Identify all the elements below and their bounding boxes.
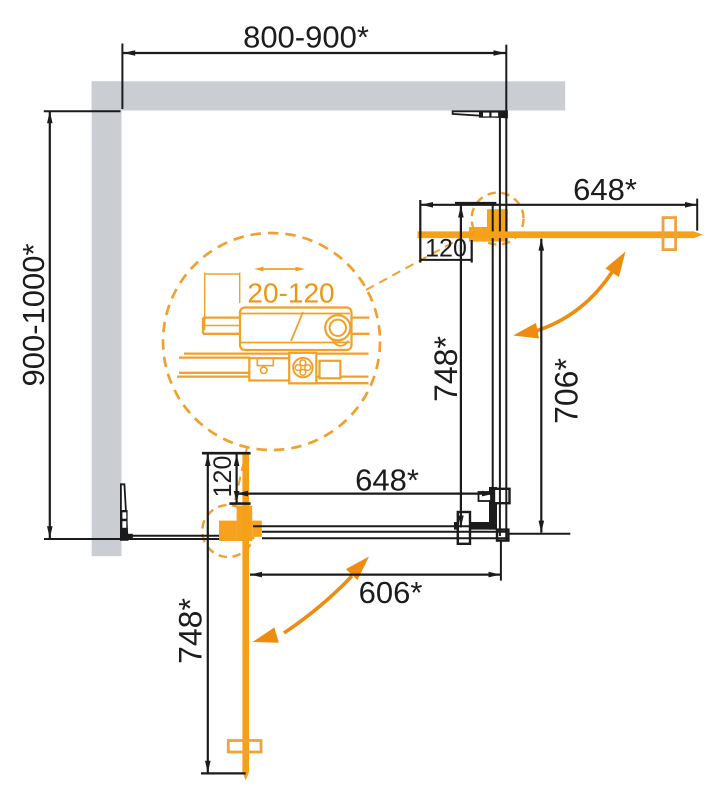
svg-text:900-1000*: 900-1000* [16, 243, 51, 386]
svg-text:706*: 706* [549, 358, 585, 424]
svg-text:748*: 748* [173, 598, 209, 664]
svg-text:120: 120 [209, 456, 237, 498]
svg-text:648*: 648* [573, 172, 637, 207]
svg-text:606*: 606* [359, 575, 423, 610]
svg-text:748*: 748* [428, 336, 464, 402]
svg-text:20-120: 20-120 [247, 277, 334, 308]
svg-text:800-900*: 800-900* [243, 19, 369, 54]
svg-text:648*: 648* [355, 463, 419, 498]
